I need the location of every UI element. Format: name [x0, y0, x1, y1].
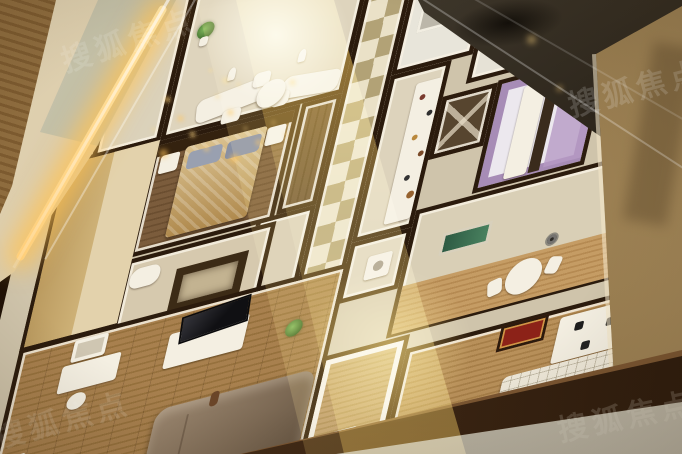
model-photo-stage: 搜狐焦点 搜狐焦点 搜狐焦点 搜狐焦点 — [0, 0, 682, 454]
beam-hotspot-top — [196, 0, 356, 110]
chandelier-sparkles — [0, 0, 3, 3]
green-painting — [438, 221, 493, 256]
beam-hotspot-bottom — [300, 260, 480, 430]
bathtub — [127, 262, 162, 290]
cabinet-items — [574, 320, 585, 331]
